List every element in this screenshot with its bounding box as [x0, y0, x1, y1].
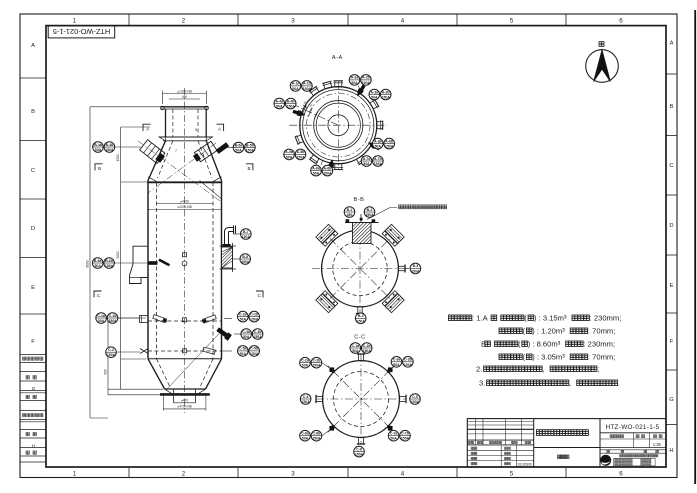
svg-text:4: 4	[401, 17, 405, 24]
svg-text:A-6a: A-6a	[312, 166, 320, 170]
svg-text:C-2a: C-2a	[239, 312, 247, 316]
svg-text:A-8b: A-8b	[385, 139, 393, 143]
svg-text:⌀470: ⌀470	[181, 399, 188, 403]
svg-text:50A: 50A	[286, 155, 293, 159]
svg-text:2: 2	[182, 17, 186, 24]
svg-text:1: 1	[73, 17, 77, 24]
svg-text:150A: 150A	[404, 363, 413, 367]
svg-text:5: 5	[510, 470, 514, 477]
svg-text:) : 3.15m³: ) : 3.15m³	[534, 314, 567, 323]
svg-text:A: A	[670, 41, 674, 47]
svg-text:C-1a: C-1a	[97, 314, 105, 318]
svg-text:150A: 150A	[107, 353, 116, 357]
svg-text:B-7: B-7	[243, 230, 249, 234]
svg-text:C-3b: C-3b	[254, 330, 262, 334]
svg-text:H: H	[669, 448, 673, 454]
svg-text:B: B	[247, 166, 250, 171]
svg-text:3: 3	[291, 17, 295, 24]
svg-text:F: F	[31, 339, 35, 345]
svg-text:A-4a: A-4a	[276, 99, 284, 103]
svg-text:C-3b: C-3b	[404, 358, 412, 362]
svg-text:C-1a: C-1a	[352, 344, 360, 348]
svg-text:50A: 50A	[98, 319, 105, 323]
svg-text:150A: 150A	[250, 318, 259, 322]
svg-text:20130306: 20130306	[518, 462, 532, 466]
svg-text:G: G	[32, 386, 36, 391]
svg-text:A-4b: A-4b	[287, 99, 295, 103]
svg-text:B-1: B-1	[347, 208, 353, 212]
svg-text:F: F	[670, 339, 674, 345]
svg-text:C-2b: C-2b	[250, 312, 258, 316]
svg-text:H: H	[32, 443, 35, 448]
svg-text:C-5b: C-5b	[250, 347, 258, 351]
svg-text:A-3a: A-3a	[371, 90, 379, 94]
svg-text:C-5: C-5	[412, 395, 418, 399]
svg-text:150A: 150A	[105, 264, 114, 268]
svg-text:A-7b: A-7b	[374, 157, 382, 161]
svg-text:C-6b: C-6b	[313, 432, 321, 436]
svg-text:150A: 150A	[365, 213, 374, 217]
svg-text:50A: 50A	[95, 148, 102, 152]
svg-text:: 70mm;: : 70mm;	[588, 353, 615, 362]
svg-text:A-6b: A-6b	[324, 166, 332, 170]
svg-text:C-3a: C-3a	[393, 358, 401, 362]
svg-text:B-4: B-4	[358, 314, 364, 318]
svg-text:150A: 150A	[250, 352, 259, 356]
svg-text:7: 7	[175, 149, 177, 153]
svg-text:5: 5	[510, 17, 514, 24]
svg-text:50A: 50A	[276, 105, 283, 109]
svg-text:150A: 150A	[357, 319, 366, 323]
svg-text:150A: 150A	[362, 81, 371, 85]
svg-text:8000: 8000	[86, 260, 90, 267]
svg-text:: 230mm;: : 230mm;	[590, 314, 622, 323]
svg-text:A-A: A-A	[332, 55, 343, 61]
svg-text:⌀4700-NB: ⌀4700-NB	[177, 405, 192, 409]
svg-text:50A: 50A	[94, 264, 101, 268]
svg-text:150A: 150A	[323, 172, 332, 176]
svg-text:A: A	[31, 43, 35, 49]
svg-text:3.: 3.	[479, 379, 485, 388]
svg-text:2: 2	[182, 470, 186, 477]
svg-text:C-1b: C-1b	[363, 344, 371, 348]
svg-text:400A: 400A	[241, 260, 250, 264]
svg-text:150A: 150A	[287, 105, 296, 109]
svg-text:B-6a: B-6a	[94, 259, 102, 263]
svg-text:150A: 150A	[246, 149, 255, 153]
svg-text:A-7a: A-7a	[363, 157, 371, 161]
svg-text:C-4: C-4	[303, 395, 309, 399]
svg-text:50A: 50A	[302, 437, 309, 441]
svg-text:A-8a: A-8a	[374, 139, 382, 143]
svg-text:C-4: C-4	[108, 348, 114, 352]
svg-text:A-2b: A-2b	[362, 76, 370, 80]
svg-text:A-5b: A-5b	[297, 150, 305, 154]
svg-text:A-3b: A-3b	[382, 90, 390, 94]
svg-text:C-8: C-8	[356, 447, 362, 451]
svg-text:A-5a: A-5a	[285, 150, 293, 154]
svg-text:50A: 50A	[302, 364, 309, 368]
svg-text:B-8: B-8	[242, 255, 248, 259]
svg-text:150A: 150A	[301, 400, 310, 404]
svg-text:150A: 150A	[105, 148, 114, 152]
svg-text:B-2: B-2	[367, 208, 373, 212]
svg-text:50A: 50A	[235, 149, 242, 153]
svg-text:C-7a: C-7a	[390, 432, 398, 436]
svg-text:5000: 5000	[116, 251, 120, 258]
svg-text:500: 500	[104, 369, 108, 375]
svg-text:A-1b: A-1b	[303, 82, 311, 86]
svg-text:50A: 50A	[375, 145, 382, 149]
svg-text:) : 3.05m³: ) : 3.05m³	[532, 353, 565, 362]
svg-text:6: 6	[619, 17, 623, 24]
svg-text:150A: 150A	[382, 96, 391, 100]
svg-text:150A: 150A	[312, 437, 321, 441]
svg-text:50A: 50A	[363, 162, 370, 166]
svg-text:: 1.A: : 1.A	[472, 314, 489, 323]
svg-text:C-7b: C-7b	[401, 432, 409, 436]
svg-text:50A: 50A	[351, 81, 358, 85]
svg-text:150A: 150A	[253, 335, 262, 339]
svg-text:150A: 150A	[401, 437, 410, 441]
svg-text:150A: 150A	[296, 155, 305, 159]
svg-text:50A: 50A	[393, 363, 400, 367]
svg-text:4: 4	[401, 470, 405, 477]
svg-text:,: ,	[543, 365, 545, 374]
svg-text:50A: 50A	[352, 349, 359, 353]
svg-text:150A: 150A	[374, 162, 383, 166]
svg-text:150A: 150A	[355, 453, 364, 457]
svg-text:150A: 150A	[411, 269, 420, 273]
svg-text:: 70mm;: : 70mm;	[588, 327, 615, 336]
svg-text:C-C: C-C	[354, 335, 365, 341]
svg-text:8: 8	[195, 128, 197, 132]
svg-text:) : 8.60m³: ) : 8.60m³	[528, 340, 561, 349]
svg-text:150A: 150A	[303, 87, 312, 91]
svg-text:B: B	[670, 104, 674, 110]
svg-text:B-5b: B-5b	[246, 143, 254, 147]
svg-text:150A: 150A	[312, 364, 321, 368]
svg-text:HTZ-WO-021-1-5: HTZ-WO-021-1-5	[53, 27, 111, 36]
svg-text:150A: 150A	[108, 319, 117, 323]
svg-text:C-2b: C-2b	[313, 359, 321, 363]
svg-text:G: G	[669, 397, 674, 403]
svg-text:) : 1.20m³: ) : 1.20m³	[532, 327, 565, 336]
svg-text:3: 3	[291, 470, 295, 477]
svg-text:50A: 50A	[243, 335, 250, 339]
svg-text:150A: 150A	[363, 349, 372, 353]
svg-text:,: ,	[569, 379, 571, 388]
svg-text:D: D	[31, 226, 35, 232]
svg-text:2.: 2.	[476, 365, 482, 374]
svg-text:B-B: B-B	[354, 197, 365, 203]
svg-text:⌀4160: ⌀4160	[180, 199, 189, 203]
svg-text:50A: 50A	[313, 172, 320, 176]
svg-text:C-2a: C-2a	[301, 359, 309, 363]
svg-text:1500: 1500	[116, 154, 120, 161]
svg-text:C: C	[669, 163, 673, 169]
svg-text:C-6a: C-6a	[301, 432, 309, 436]
svg-text:50A: 50A	[292, 87, 299, 91]
svg-text:⌀4200-NB: ⌀4200-NB	[177, 205, 192, 209]
svg-text:50A: 50A	[371, 96, 378, 100]
svg-text:HTZ-WO-021-1-5: HTZ-WO-021-1-5	[605, 424, 659, 431]
svg-text:E: E	[31, 285, 35, 291]
svg-text:A-2a: A-2a	[351, 76, 359, 80]
svg-text:C-3a: C-3a	[242, 330, 250, 334]
svg-text:450: 450	[347, 213, 353, 217]
svg-text:50A: 50A	[390, 437, 397, 441]
svg-text:D: D	[669, 223, 673, 229]
svg-text:B-4a: B-4a	[94, 143, 102, 147]
svg-text:150A: 150A	[411, 400, 420, 404]
svg-text:50A: 50A	[240, 352, 247, 356]
svg-text:C-5a: C-5a	[239, 347, 247, 351]
svg-text:B: B	[31, 109, 35, 115]
svg-text:;: ;	[597, 365, 599, 374]
svg-text:1: 1	[73, 470, 77, 477]
svg-text:E: E	[670, 283, 674, 289]
svg-text:B-3: B-3	[413, 264, 419, 268]
svg-text:50A: 50A	[240, 318, 247, 322]
svg-text:.: .	[618, 379, 620, 388]
svg-text:B: B	[98, 166, 101, 171]
svg-text:B-6b: B-6b	[105, 259, 113, 263]
svg-text:A-1a: A-1a	[292, 82, 300, 86]
svg-text:C: C	[31, 168, 35, 174]
svg-text:1:35: 1:35	[653, 442, 662, 447]
svg-text:150A: 150A	[242, 235, 251, 239]
svg-text:150A: 150A	[385, 145, 394, 149]
svg-text:: 230mm;: : 230mm;	[583, 340, 615, 349]
svg-text:C-1b: C-1b	[109, 314, 117, 318]
svg-text:6: 6	[619, 470, 623, 477]
svg-text:B-4b: B-4b	[106, 143, 114, 147]
svg-text:B-5a: B-5a	[235, 143, 243, 147]
